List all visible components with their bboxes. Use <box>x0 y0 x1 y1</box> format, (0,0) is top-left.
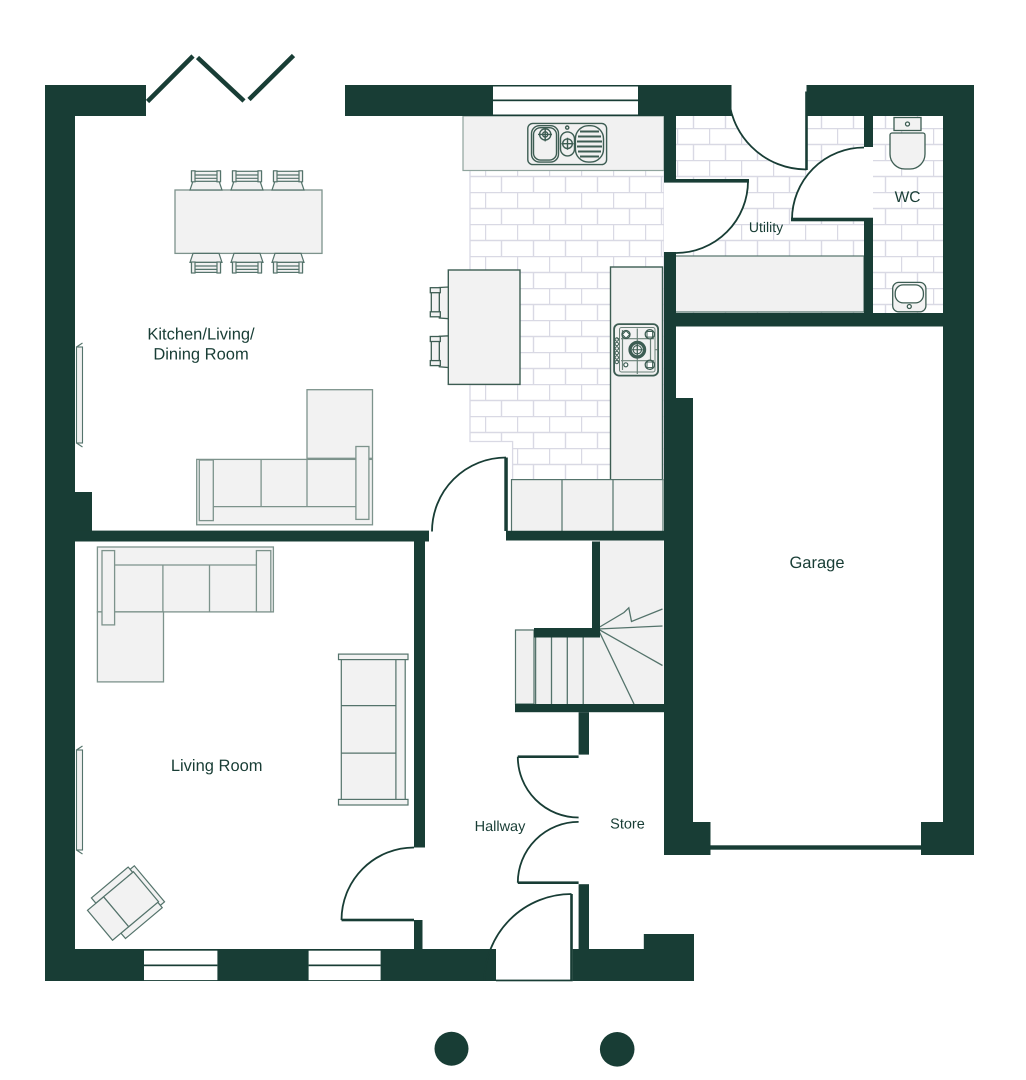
svg-text:Utility: Utility <box>749 219 783 235</box>
svg-text:Hallway: Hallway <box>475 819 527 835</box>
svg-text:WC: WC <box>895 189 921 206</box>
svg-text:Living Room: Living Room <box>171 757 263 775</box>
svg-text:Dining Room: Dining Room <box>153 346 248 364</box>
svg-text:Garage: Garage <box>789 554 844 572</box>
svg-text:Store: Store <box>610 817 645 833</box>
svg-text:Kitchen/Living/: Kitchen/Living/ <box>147 326 255 344</box>
